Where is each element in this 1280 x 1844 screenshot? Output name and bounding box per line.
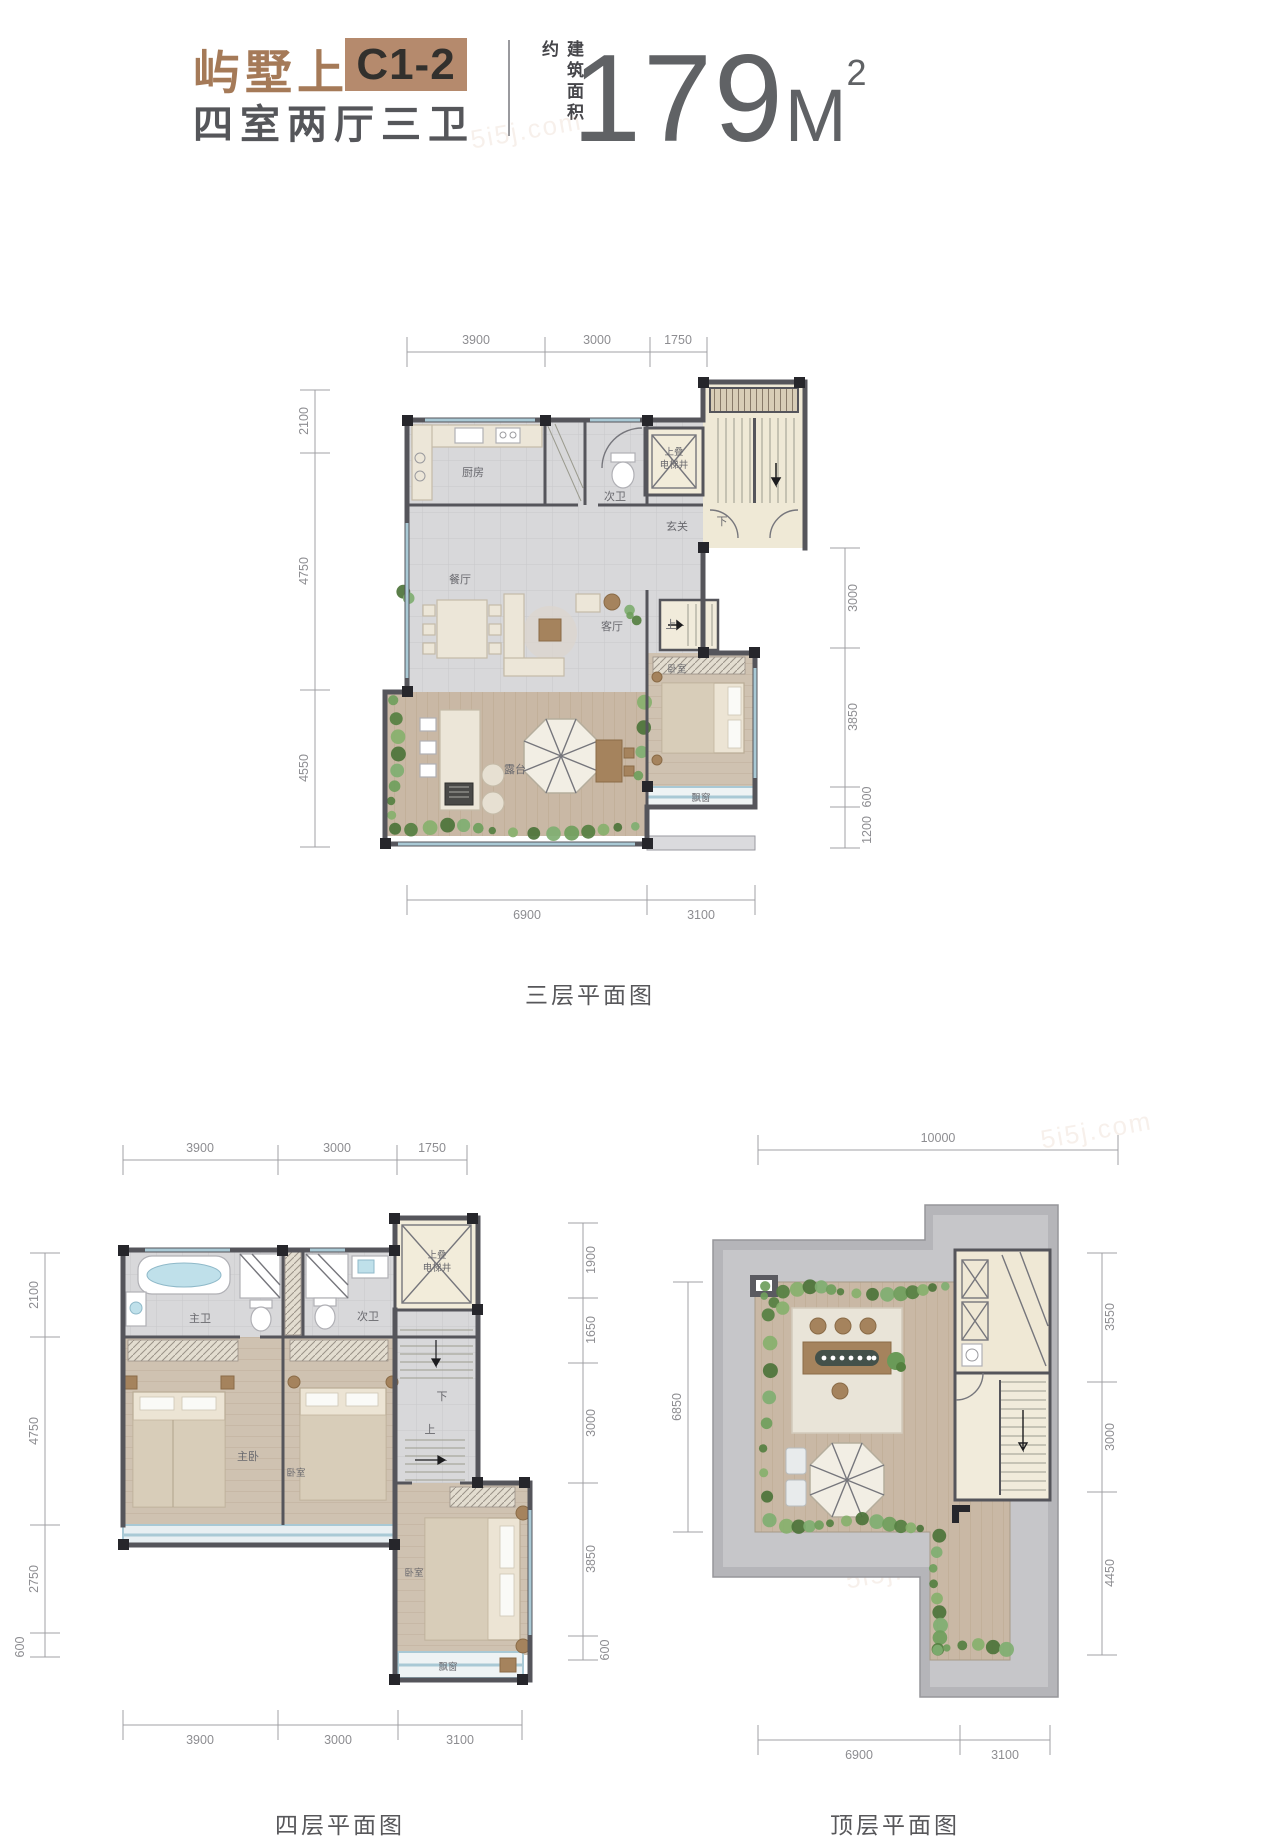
room-label-master: 主卧 bbox=[237, 1450, 259, 1463]
caption-roof-floor: 顶层平面图 bbox=[765, 1806, 1025, 1840]
plant bbox=[776, 1285, 790, 1299]
dim: 3000 bbox=[1103, 1423, 1117, 1451]
dim: 1200 bbox=[860, 816, 874, 844]
plant bbox=[917, 1284, 929, 1296]
plan-third-floor: 3900 3000 1750 2100 4750 4550 3000 3850 … bbox=[240, 278, 770, 980]
plant bbox=[928, 1283, 937, 1292]
plant bbox=[932, 1645, 943, 1656]
dim: 3000 bbox=[584, 1409, 598, 1437]
plant bbox=[931, 1593, 943, 1605]
plant bbox=[489, 827, 496, 834]
plant bbox=[941, 1282, 950, 1291]
dim: 2750 bbox=[27, 1565, 41, 1593]
plant bbox=[760, 1281, 770, 1291]
plant bbox=[906, 1285, 920, 1299]
room-label-master-bath: 主卫 bbox=[189, 1312, 211, 1325]
dim: 10000 bbox=[921, 1131, 956, 1145]
dim: 3100 bbox=[446, 1733, 474, 1747]
plant bbox=[762, 1391, 776, 1405]
plant bbox=[851, 1288, 861, 1298]
p5-gazebo bbox=[786, 1443, 884, 1517]
plant bbox=[762, 1513, 776, 1527]
plant bbox=[598, 824, 610, 836]
plant bbox=[929, 1564, 938, 1573]
dim: 3900 bbox=[186, 1733, 214, 1747]
room-label-terrace: 露台 bbox=[504, 762, 526, 776]
plan-fourth-floor: 3900 3000 1750 2100 4750 2750 600 1900 1… bbox=[0, 1040, 610, 1844]
plant bbox=[440, 818, 455, 833]
room-label-bedroom2: 卧室 bbox=[286, 1467, 305, 1479]
plant bbox=[763, 1336, 778, 1351]
plant bbox=[457, 819, 470, 832]
dim: 6900 bbox=[845, 1748, 873, 1762]
dim: 600 bbox=[598, 1640, 612, 1661]
room-label-elevator-1: 上叠 bbox=[427, 1250, 446, 1261]
caption-third-floor: 三层平面图 bbox=[460, 976, 720, 1010]
dim: 3000 bbox=[583, 333, 611, 347]
dim: 3850 bbox=[584, 1545, 598, 1573]
room-label-kitchen: 厨房 bbox=[462, 466, 484, 479]
plant bbox=[957, 1641, 967, 1651]
plant bbox=[894, 1520, 907, 1533]
plant bbox=[389, 823, 401, 835]
plant bbox=[387, 797, 395, 805]
room-label-elevator-1: 上叠 bbox=[664, 447, 683, 458]
stair-label-down: 下 bbox=[437, 1391, 448, 1403]
plant bbox=[637, 720, 651, 734]
plant bbox=[932, 1605, 946, 1619]
plant bbox=[837, 1288, 844, 1295]
plant bbox=[632, 616, 642, 626]
p5-stairwell bbox=[952, 1373, 1050, 1523]
plant bbox=[564, 826, 579, 841]
dim: 4750 bbox=[27, 1417, 41, 1445]
dim: 1750 bbox=[418, 1141, 446, 1155]
plant bbox=[508, 827, 518, 837]
room-label-dining: 餐厅 bbox=[449, 572, 471, 586]
dim: 1650 bbox=[584, 1316, 598, 1344]
dim: 3000 bbox=[846, 584, 860, 612]
caption-fourth-floor: 四层平面图 bbox=[210, 1806, 470, 1840]
room-label-elevator-2: 电梯井 bbox=[423, 1262, 452, 1274]
plant bbox=[931, 1546, 943, 1558]
area-unit: M bbox=[785, 74, 847, 157]
dim: 3000 bbox=[323, 1141, 351, 1155]
plant bbox=[866, 1288, 879, 1301]
dim: 2100 bbox=[27, 1281, 41, 1309]
room-label-bay: 飘窗 bbox=[691, 792, 710, 804]
plant bbox=[933, 1630, 948, 1645]
dim: 1750 bbox=[664, 333, 692, 347]
plant bbox=[943, 1644, 950, 1651]
plant bbox=[790, 1282, 805, 1297]
plant bbox=[527, 827, 540, 840]
room-label-bedroom3: 卧室 bbox=[404, 1567, 423, 1579]
dim: 3550 bbox=[1103, 1303, 1117, 1331]
plant bbox=[932, 1529, 946, 1543]
plant bbox=[473, 823, 484, 834]
dim: 3100 bbox=[991, 1748, 1019, 1762]
plant bbox=[390, 764, 404, 778]
plan-roof-floor: 10000 6850 3550 3000 4450 6900 3100 bbox=[640, 1080, 1280, 1844]
dim: 3100 bbox=[687, 908, 715, 922]
dim: 600 bbox=[13, 1637, 27, 1658]
plant bbox=[803, 1520, 815, 1532]
p3-bedroom bbox=[652, 657, 745, 765]
area-superscript: 2 bbox=[847, 52, 867, 93]
plant bbox=[423, 820, 438, 835]
plant bbox=[759, 1468, 768, 1477]
plant bbox=[637, 695, 652, 710]
floorplan-sheet: 屿墅上 C1-2 四室两厅三卫 建筑面积约 179M2 5i5j.com 5i5… bbox=[0, 0, 1280, 1844]
dim: 3900 bbox=[186, 1141, 214, 1155]
plant bbox=[389, 780, 401, 792]
dim: 6900 bbox=[513, 908, 541, 922]
plant bbox=[856, 1512, 869, 1525]
plant bbox=[986, 1640, 1000, 1654]
room-label-bath2: 次卫 bbox=[357, 1309, 379, 1323]
room-label-living: 客厅 bbox=[601, 619, 623, 633]
plant bbox=[391, 729, 406, 744]
plant bbox=[761, 1418, 773, 1430]
stair-label-down: 下 bbox=[717, 516, 728, 528]
plant bbox=[759, 1444, 767, 1452]
room-label-bedroom: 卧室 bbox=[667, 663, 686, 675]
plant bbox=[631, 822, 640, 831]
dim: 1900 bbox=[584, 1246, 598, 1274]
plant bbox=[634, 771, 644, 781]
plant bbox=[869, 1514, 884, 1529]
dim: 600 bbox=[860, 787, 874, 808]
plant bbox=[391, 747, 406, 762]
dim: 4750 bbox=[297, 557, 311, 585]
plant bbox=[613, 823, 622, 832]
plant bbox=[388, 695, 398, 705]
plant bbox=[387, 811, 396, 820]
room-label-foyer: 玄关 bbox=[666, 519, 688, 533]
plant bbox=[826, 1519, 834, 1527]
dim: 2100 bbox=[297, 407, 311, 435]
plant bbox=[906, 1522, 917, 1533]
dim: 3900 bbox=[462, 333, 490, 347]
stair-label-up: 上 bbox=[666, 618, 677, 631]
watermark: 5i5j.com bbox=[468, 105, 584, 155]
plant bbox=[581, 825, 595, 839]
plant bbox=[776, 1301, 789, 1314]
room-label-bay: 飘窗 bbox=[438, 1661, 457, 1673]
plant bbox=[760, 1292, 768, 1300]
plant bbox=[815, 1280, 828, 1293]
plant bbox=[390, 712, 403, 725]
p5-elevator-room bbox=[955, 1250, 1050, 1373]
plant bbox=[999, 1642, 1014, 1657]
dim: 3000 bbox=[324, 1733, 352, 1747]
room-label-bath2: 次卫 bbox=[604, 489, 626, 503]
plant bbox=[929, 1579, 938, 1588]
plant bbox=[404, 823, 418, 837]
area-value: 179M2 bbox=[572, 8, 867, 181]
dim: 4550 bbox=[297, 754, 311, 782]
unit-code-badge: C1-2 bbox=[345, 38, 467, 91]
stair-label-up: 上 bbox=[425, 1423, 436, 1436]
plant bbox=[762, 1308, 775, 1321]
p5-dining-set bbox=[792, 1308, 906, 1433]
plant bbox=[916, 1525, 924, 1533]
plant bbox=[880, 1287, 895, 1302]
plant bbox=[761, 1491, 773, 1503]
plant bbox=[841, 1516, 852, 1527]
area-number: 179 bbox=[572, 30, 785, 168]
room-label-elevator-2: 电梯井 bbox=[660, 459, 689, 471]
dim: 3850 bbox=[846, 703, 860, 731]
plant bbox=[763, 1363, 778, 1378]
plant bbox=[546, 826, 561, 841]
dim: 4450 bbox=[1103, 1559, 1117, 1587]
dim: 6850 bbox=[670, 1393, 684, 1421]
plant bbox=[972, 1638, 985, 1651]
plant bbox=[814, 1520, 824, 1530]
plant bbox=[826, 1284, 837, 1295]
layout-description: 四室两厅三卫 bbox=[193, 92, 475, 150]
